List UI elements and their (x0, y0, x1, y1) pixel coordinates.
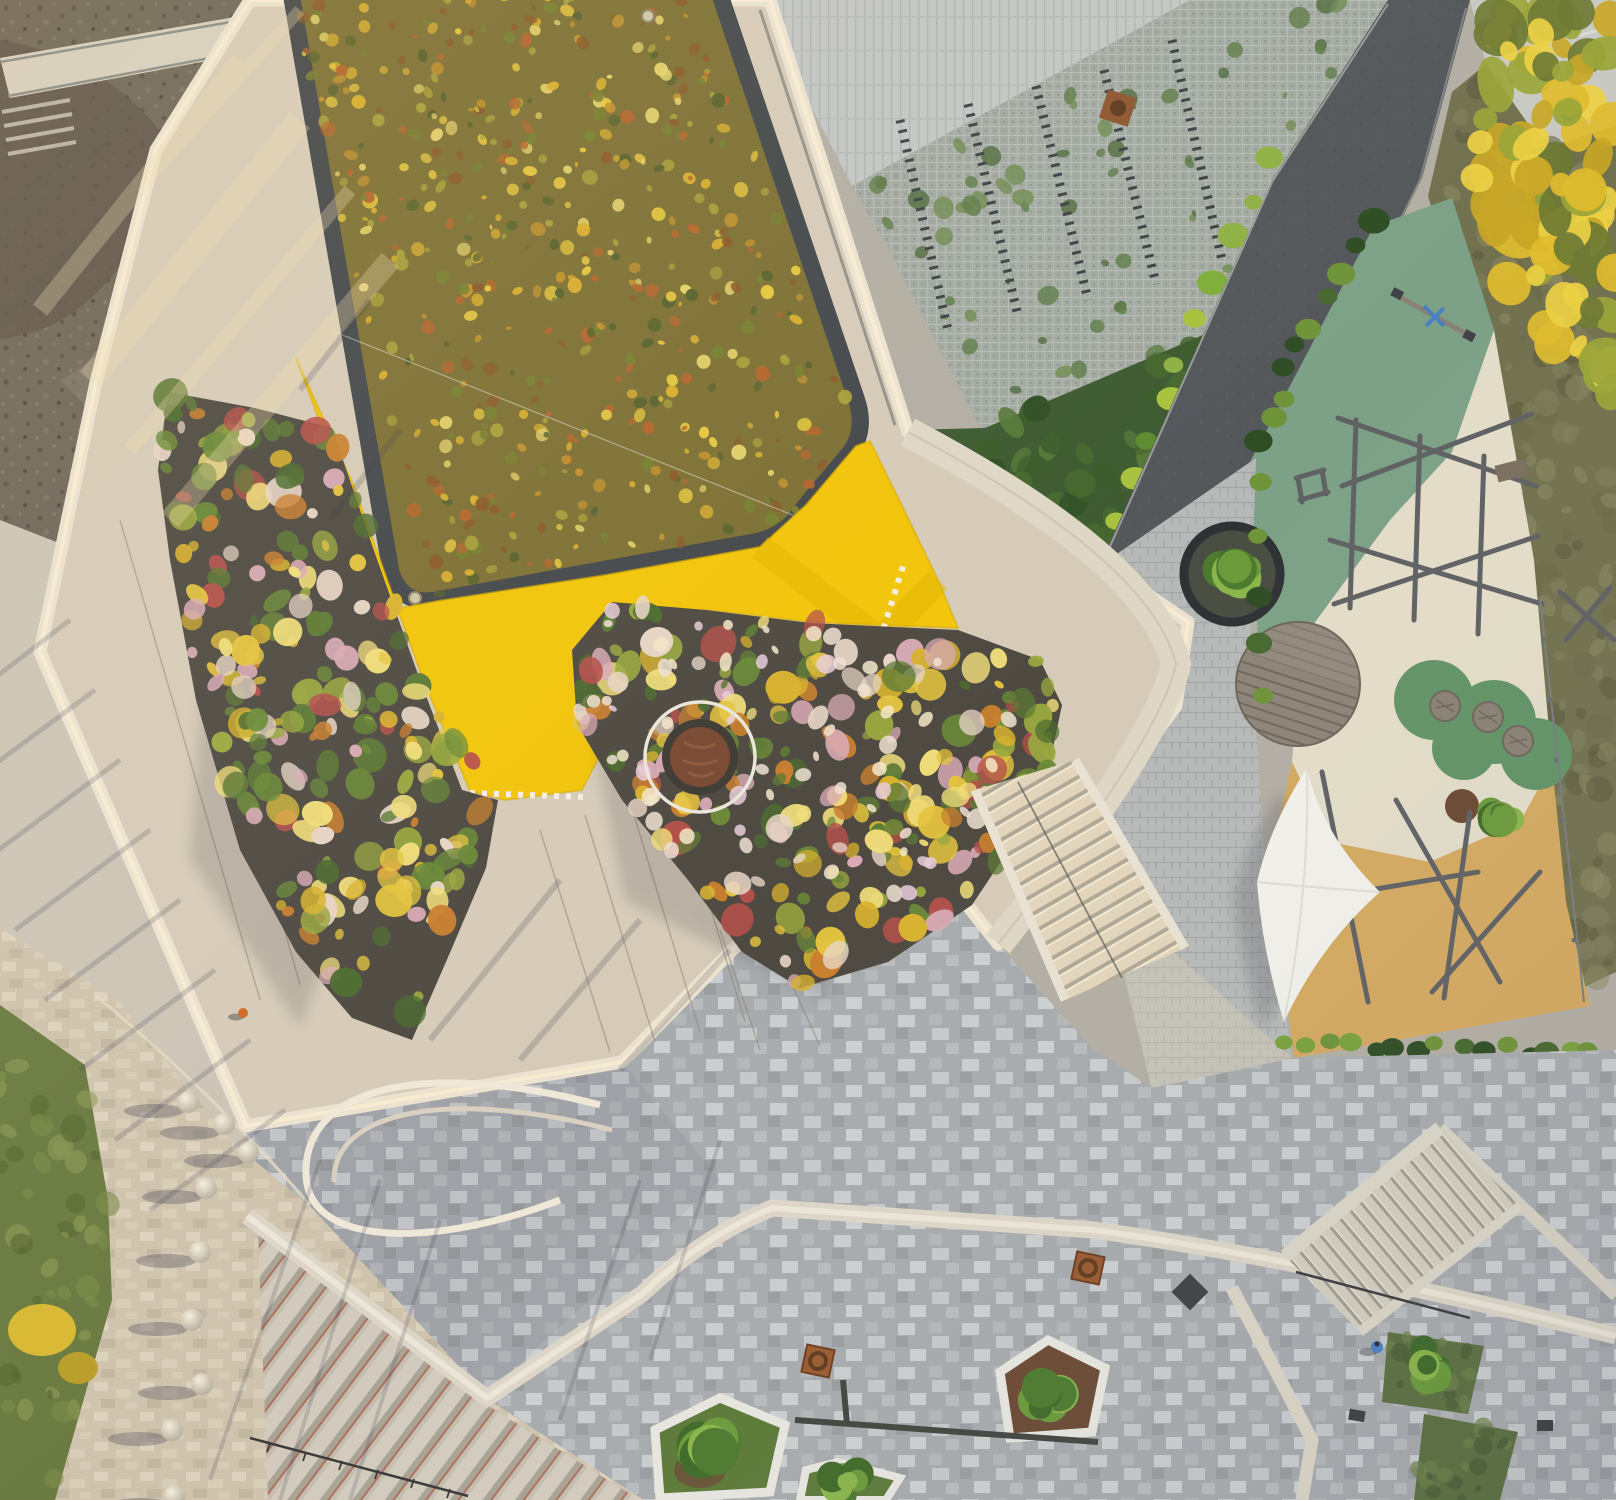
light-shadow-overlays (0, 0, 1616, 1500)
aerial-photo: Aerial top-down drone photograph at gold… (0, 0, 1616, 1500)
global-tint (0, 0, 1616, 1500)
aerial-photo-canvas: Aerial top-down drone photograph at gold… (0, 0, 1616, 1500)
